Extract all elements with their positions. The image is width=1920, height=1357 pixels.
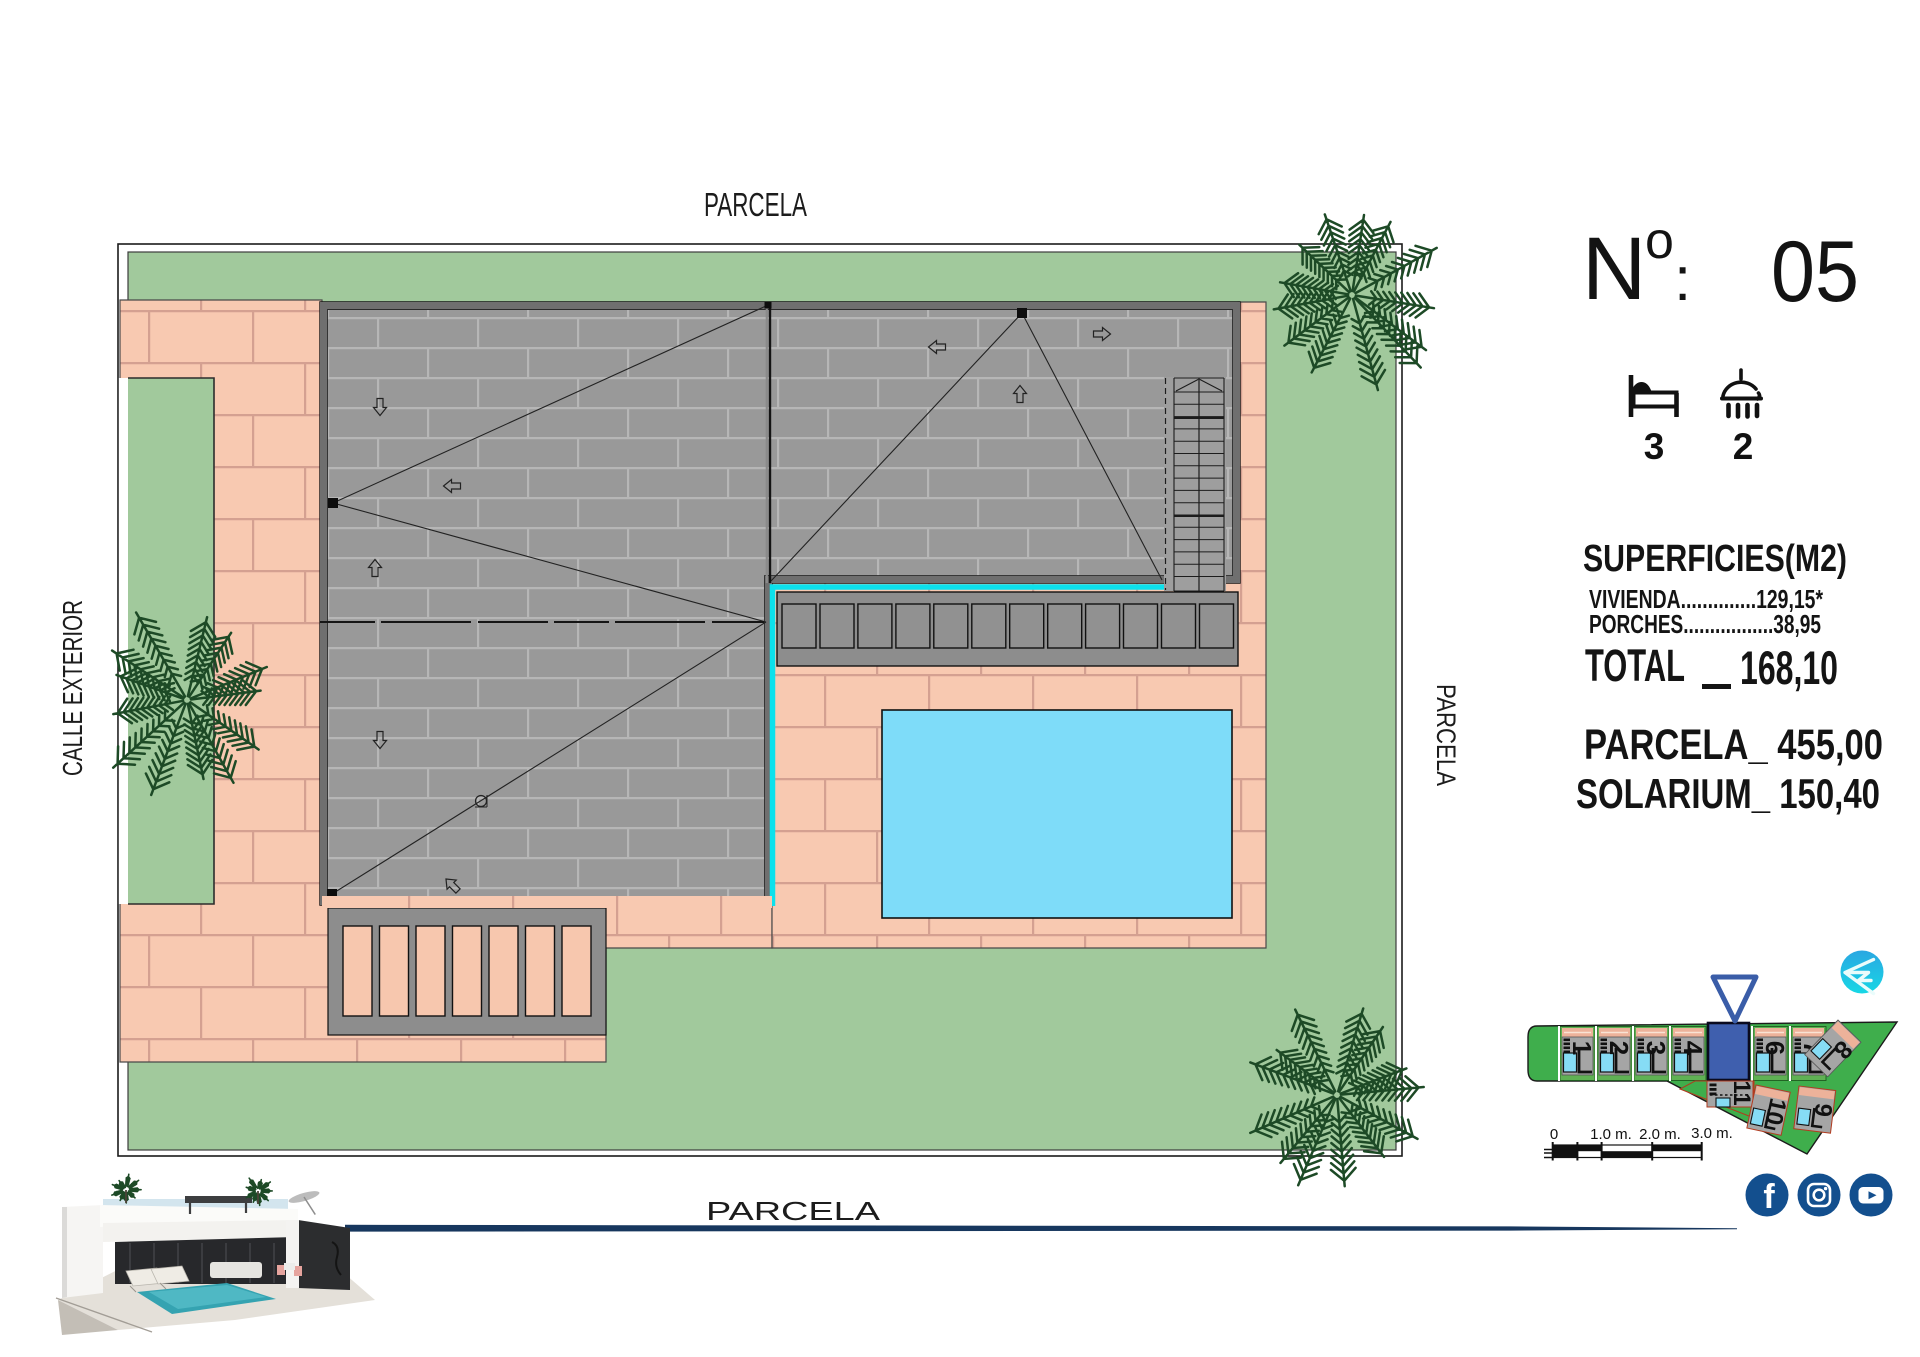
svg-text:168,10: 168,10 — [1740, 641, 1838, 694]
svg-text:CALLE EXTERIOR: CALLE EXTERIOR — [57, 600, 88, 776]
svg-text:2.0 m.: 2.0 m. — [1639, 1126, 1681, 1143]
svg-text:3.0 m.: 3.0 m. — [1691, 1125, 1733, 1142]
svg-text:1: 1 — [1567, 1041, 1597, 1055]
svg-text:PARCELA: PARCELA — [706, 1196, 881, 1226]
svg-text:3: 3 — [1644, 426, 1665, 467]
svg-text:f: f — [1763, 1178, 1775, 1216]
svg-text:6: 6 — [1760, 1041, 1790, 1055]
svg-text:PARCELA: PARCELA — [704, 186, 807, 223]
svg-text:PARCELA_ 455,00: PARCELA_ 455,00 — [1584, 721, 1883, 769]
svg-text:1.0 m.: 1.0 m. — [1590, 1126, 1632, 1143]
svg-text:4: 4 — [1678, 1041, 1708, 1056]
svg-text:2: 2 — [1604, 1041, 1634, 1055]
svg-text:11: 11 — [1728, 1080, 1755, 1105]
svg-text:TOTAL: TOTAL — [1585, 640, 1685, 691]
svg-text:PORCHES.................38,95: PORCHES.................38,95 — [1589, 609, 1821, 639]
svg-text::: : — [1674, 245, 1691, 314]
svg-text:3: 3 — [1641, 1041, 1671, 1055]
svg-text:10: 10 — [1759, 1096, 1791, 1128]
svg-text:SUPERFICIES(M2): SUPERFICIES(M2) — [1583, 538, 1847, 580]
svg-text:2: 2 — [1733, 426, 1754, 467]
svg-text:0: 0 — [1550, 1126, 1558, 1143]
svg-text:PARCELA: PARCELA — [1431, 684, 1461, 786]
svg-text:o: o — [1645, 212, 1674, 270]
svg-text:SOLARIUM_ 150,40: SOLARIUM_ 150,40 — [1576, 770, 1880, 817]
svg-text:05: 05 — [1771, 224, 1859, 320]
svg-text:N: N — [1582, 218, 1646, 318]
